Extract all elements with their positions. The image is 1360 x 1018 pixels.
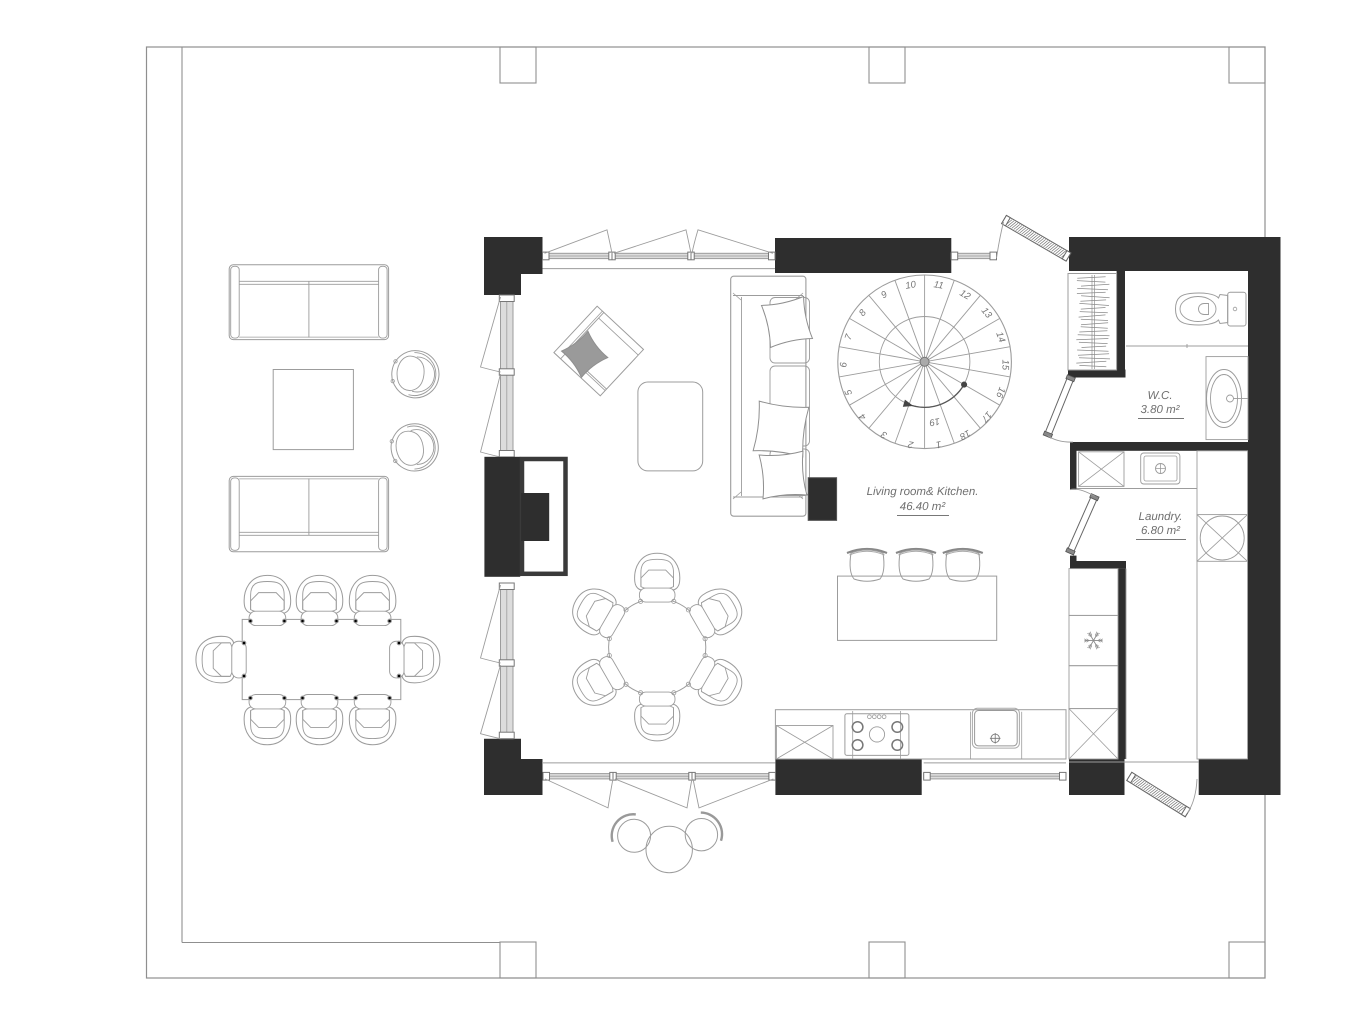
svg-text:Living room& Kitchen.: Living room& Kitchen.: [867, 486, 979, 498]
svg-text:15: 15: [1000, 360, 1011, 371]
svg-text:46.40 m²: 46.40 m²: [900, 501, 947, 513]
svg-text:W.C.: W.C.: [1147, 390, 1172, 402]
svg-text:6.80 m²: 6.80 m²: [1141, 525, 1181, 537]
svg-text:3.80 m²: 3.80 m²: [1141, 404, 1181, 416]
svg-text:Laundry.: Laundry.: [1139, 511, 1183, 523]
svg-text:11: 11: [933, 279, 945, 292]
svg-text:6: 6: [839, 361, 850, 367]
